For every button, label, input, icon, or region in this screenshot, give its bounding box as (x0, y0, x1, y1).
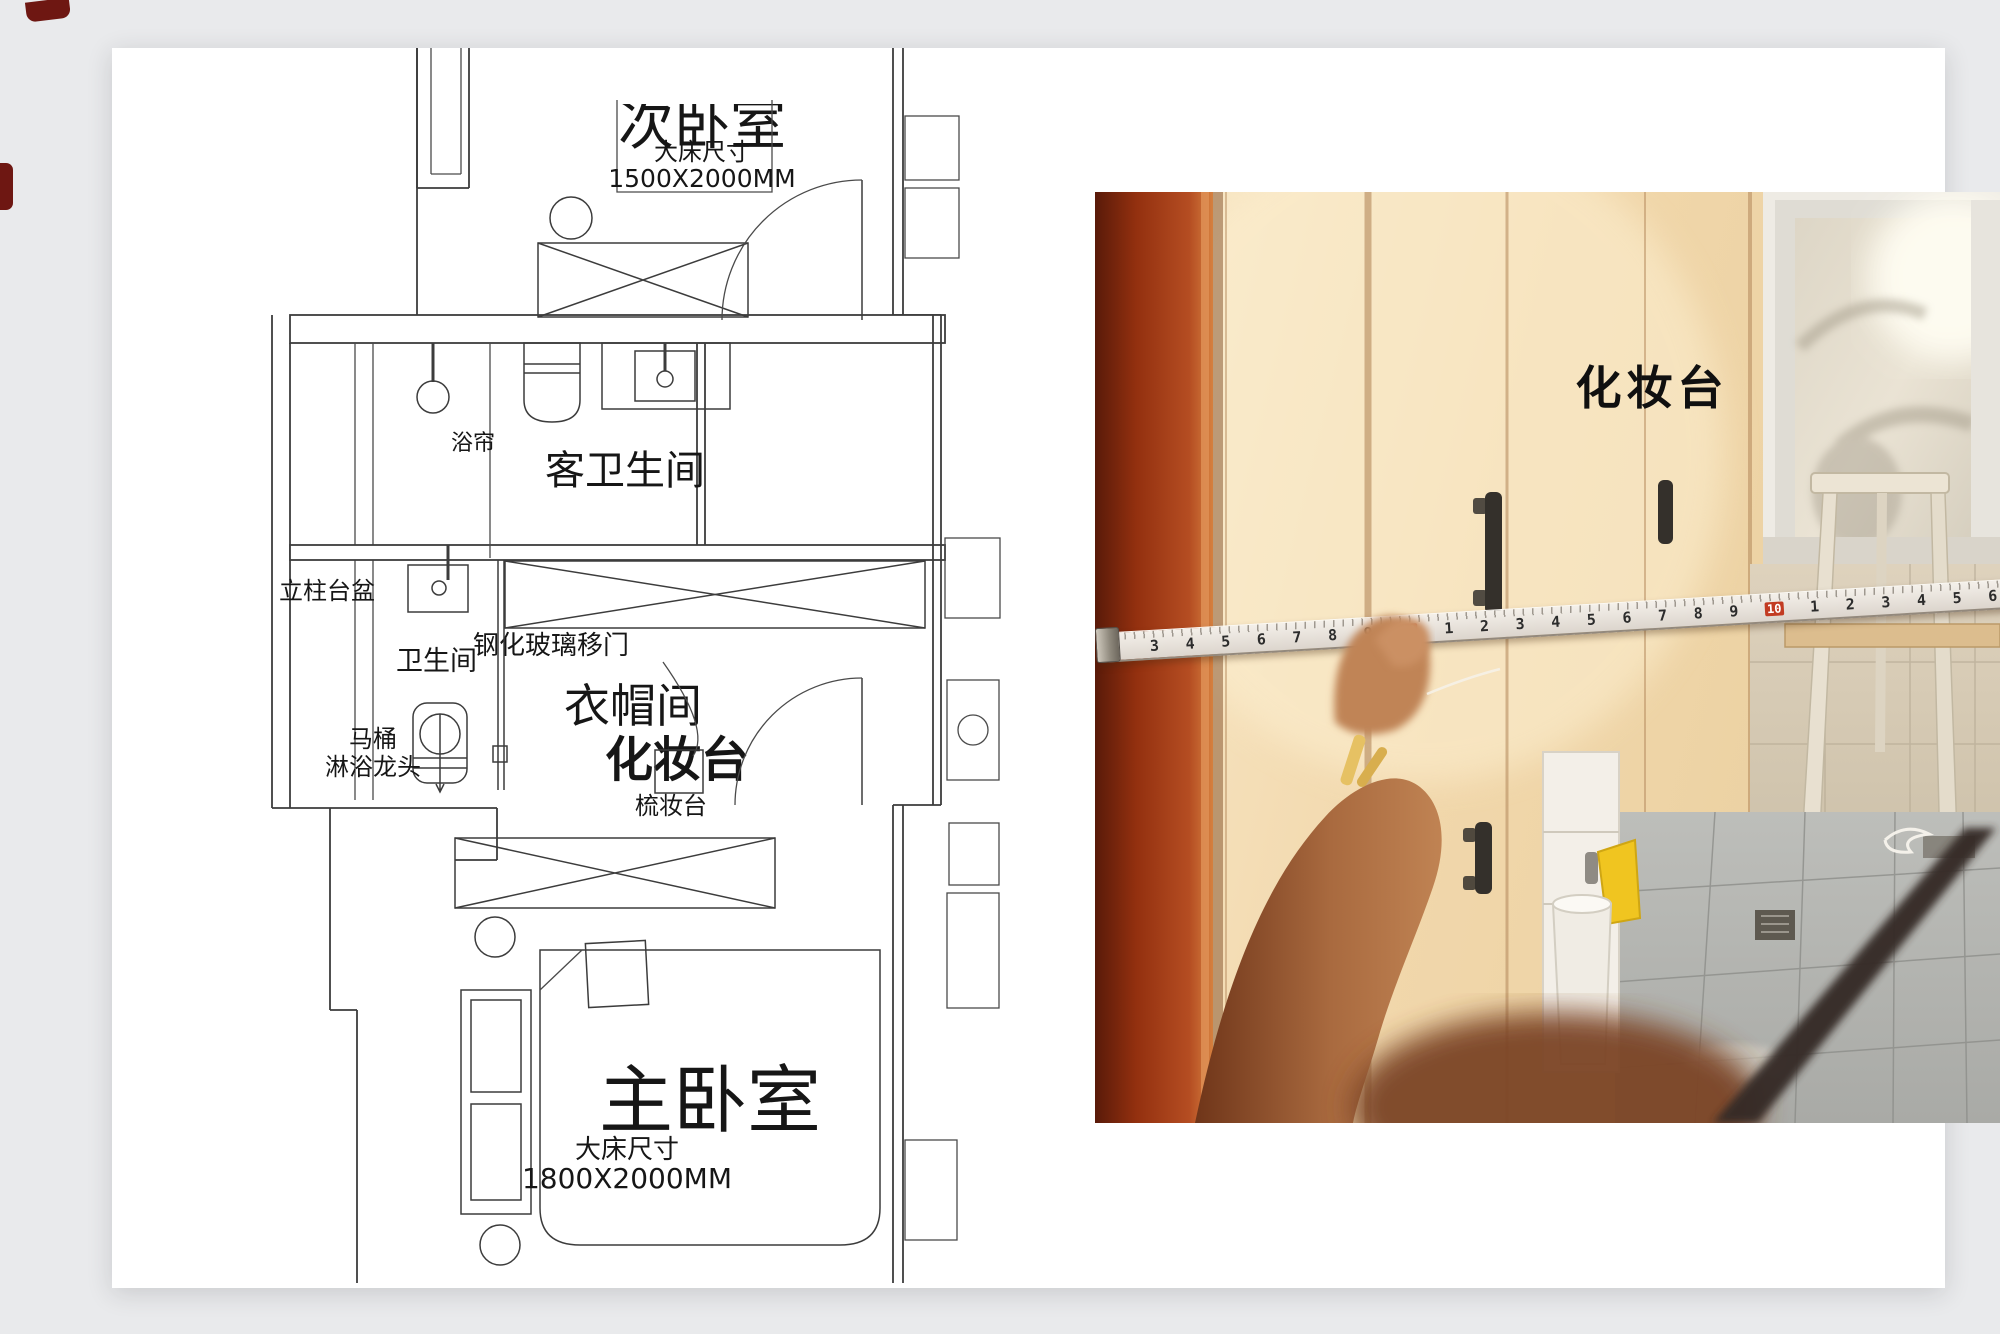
bed-size-caption-secondary: 大床尺寸 (654, 138, 750, 166)
blurred-thumb (1350, 1012, 1760, 1123)
sink-counter-icon (602, 343, 730, 409)
label-vanity-table: 梳妆台 (635, 792, 707, 820)
label-tempered-glass-door: 钢化玻璃移门 (473, 631, 629, 661)
floor-plan: 次卧室 大床尺寸 1500X2000MM (265, 48, 1005, 1290)
label-toilet: 马桶 (349, 725, 397, 753)
torn-edge-mark (0, 163, 13, 210)
sofa-icon (461, 990, 531, 1214)
screenshot-stage: 次卧室 大床尺寸 1500X2000MM (0, 0, 2000, 1334)
photo-foreground (1095, 192, 2000, 1123)
room-label-master-bedroom: 主卧室 (599, 1058, 821, 1144)
room-label-bathroom: 卫生间 (396, 646, 477, 677)
stool-icon-2 (475, 917, 515, 957)
crop-cover (605, 48, 785, 104)
label-pedestal-basin: 立柱台盆 (279, 577, 375, 605)
wardrobe-master-bedroom (455, 838, 775, 908)
label-shower-faucet: 淋浴龙头 (325, 753, 421, 781)
bed-size-value-master: 1800X2000MM (522, 1162, 732, 1195)
label-shower-curtain: 浴帘 (451, 431, 495, 456)
wardrobe-cloakroom-top (505, 561, 925, 628)
dark-strap (1713, 828, 1996, 1123)
bed-size-value-secondary: 1500X2000MM (608, 164, 796, 193)
door-secondary-bedroom (722, 180, 862, 320)
door-cloakroom (735, 678, 862, 805)
wardrobe-secondary-bedroom (538, 243, 748, 317)
white-string (1427, 669, 1500, 694)
label-dressing-table: 化妆台 (605, 732, 749, 788)
bed-size-caption-master: 大床尺寸 (575, 1135, 679, 1165)
room-label-cloakroom: 衣帽间 (564, 679, 702, 733)
renovation-photo: 化妆台 34567891012345678910123456 (1095, 192, 2000, 1123)
toilet-bathroom-icon (413, 703, 467, 792)
stool-icon-3 (480, 1225, 520, 1265)
room-label-guest-bathroom: 客卫生间 (545, 448, 705, 494)
stool-icon (550, 197, 592, 239)
shower-head-icon (417, 343, 449, 413)
toilet-guest-bath-icon (524, 343, 580, 422)
torn-corner-mark (25, 0, 71, 23)
